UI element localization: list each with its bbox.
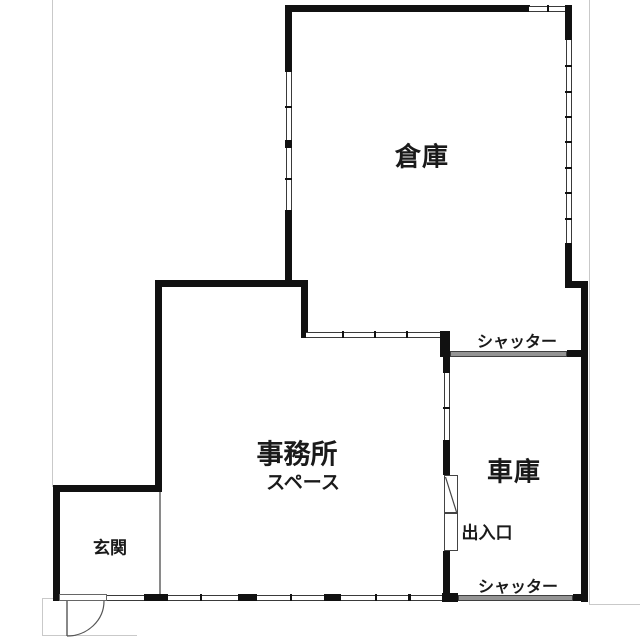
garage-label: 車庫 <box>487 452 541 489</box>
garage-door-panel-lower <box>444 513 458 551</box>
partition-foot-block <box>442 593 458 602</box>
window-divider <box>565 192 572 194</box>
window-divider <box>565 65 572 67</box>
window-divider <box>342 331 344 338</box>
bottom-window-4 <box>341 595 442 601</box>
warehouse-top-wall <box>287 5 530 12</box>
window-divider <box>406 331 408 338</box>
garage-left-wall-b <box>443 440 450 475</box>
window-divider <box>374 331 376 338</box>
office-label-line2: スペース <box>266 468 340 495</box>
entrance-door-arc <box>50 594 112 639</box>
bottom-window-1 <box>107 595 144 601</box>
garage-top-wall-right <box>567 350 583 357</box>
entrance-label: 玄関 <box>93 534 127 559</box>
garage-right-wall <box>581 281 588 602</box>
warehouse-step-wall-vertical <box>301 280 308 338</box>
window-divider <box>565 141 572 143</box>
office-top-wall <box>155 280 308 287</box>
bottom-wall-seg-1 <box>144 594 168 601</box>
window-divider <box>200 594 202 601</box>
window-divider <box>565 218 572 220</box>
window-divider <box>408 594 411 601</box>
boundary-line-bottomleft-v <box>42 598 43 636</box>
warehouse-label: 倉庫 <box>395 137 449 174</box>
warehouse-left-wall-lower <box>285 210 292 287</box>
shutter-top-label: シャッター <box>477 328 557 352</box>
window-divider <box>375 594 377 601</box>
bottom-wall-seg-4 <box>573 594 588 601</box>
warehouse-left-wall-upper <box>285 5 292 72</box>
bottom-wall-seg-2 <box>238 594 257 601</box>
boundary-line-left <box>52 0 53 487</box>
window-divider <box>565 116 572 118</box>
entrance-partition-line <box>159 492 161 595</box>
bottom-wall-seg-3 <box>324 594 341 601</box>
window-divider <box>565 167 572 169</box>
window-divider <box>547 5 549 12</box>
office-label-line1: 事務所 <box>257 433 338 472</box>
warehouse-left-wall-mid <box>285 140 292 148</box>
bottom-window-2 <box>168 595 238 601</box>
office-step-wall <box>53 485 162 492</box>
boundary-line-right <box>589 0 590 604</box>
window-divider <box>565 91 572 93</box>
office-left-wall <box>155 280 162 492</box>
floor-plan: 倉庫 事務所 スペース 車庫 玄関 出入口 シャッター シャッター <box>0 0 640 639</box>
entrance-left-wall <box>53 485 60 601</box>
warehouse-right-wall-upper <box>565 5 572 40</box>
shutter-bottom-label: シャッター <box>478 573 558 597</box>
window-divider <box>443 407 450 409</box>
boundary-line-right-bottom <box>589 604 640 605</box>
window-divider <box>285 106 292 108</box>
window-divider <box>290 594 292 601</box>
garage-left-wall-a <box>443 350 450 373</box>
window-divider <box>285 178 292 180</box>
doorway-label: 出入口 <box>462 519 513 544</box>
garage-door-swing-line <box>444 475 458 513</box>
